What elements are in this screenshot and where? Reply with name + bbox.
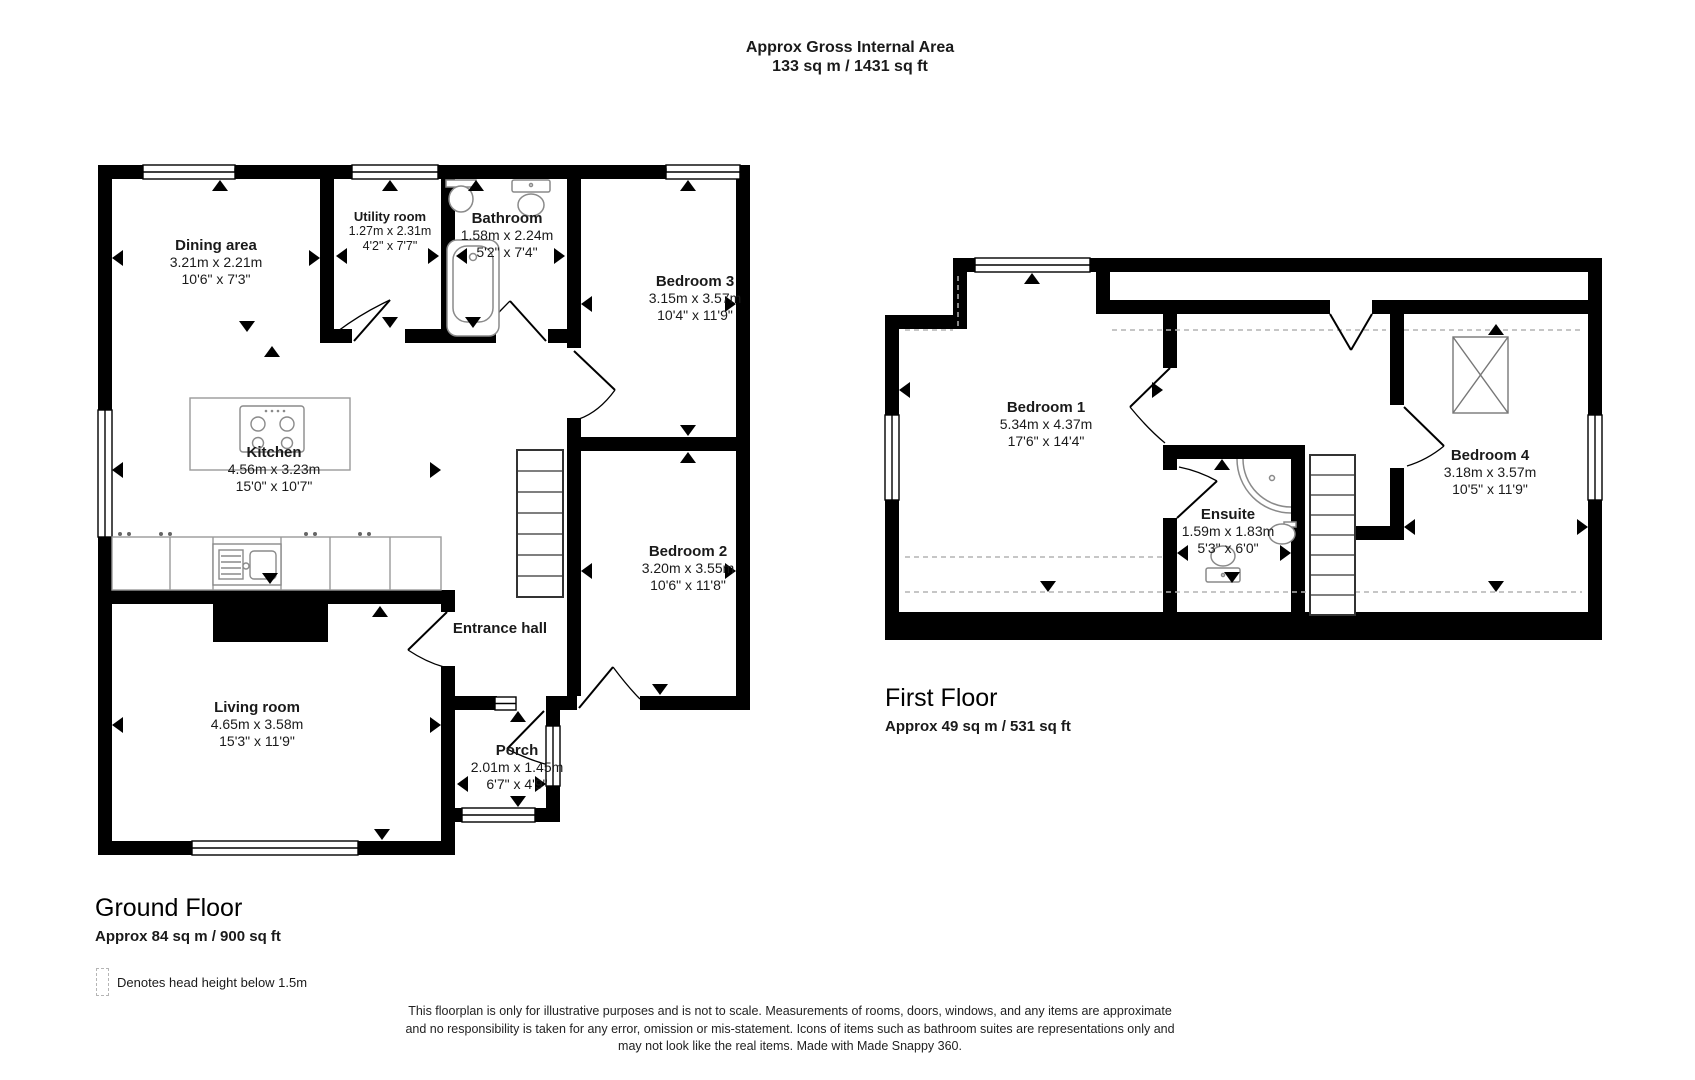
room-label-kitchen: Kitchen 4.56m x 3.23m 15'0" x 10'7" bbox=[228, 444, 321, 495]
door-swing bbox=[1130, 368, 1170, 443]
window-sill bbox=[235, 169, 312, 172]
room-label-porch: Porch 2.01m x 1.45m 6'7" x 4'9" bbox=[471, 742, 564, 793]
room-label-living-room: Living room 4.65m x 3.58m 15'3" x 11'9" bbox=[211, 699, 304, 750]
disclaimer-line-3: may not look like the real items. Made w… bbox=[370, 1038, 1210, 1056]
room-label-utility-room: Utility room 1.27m x 2.31m 4'2" x 7'7" bbox=[349, 209, 432, 254]
head-height-legend-icon bbox=[96, 968, 109, 996]
ground-floor-doors bbox=[338, 300, 640, 764]
room-label-bedroom-2: Bedroom 2 3.20m x 3.55m 10'6" x 11'8" bbox=[642, 543, 735, 594]
disclaimer-line-2: and no responsibility is taken for any e… bbox=[370, 1021, 1210, 1039]
title-line-1: Approx Gross Internal Area bbox=[746, 38, 954, 57]
skylight-icon bbox=[1453, 337, 1508, 413]
head-height-legend: Denotes head height below 1.5m bbox=[96, 968, 307, 996]
window-sill bbox=[598, 169, 666, 172]
title-line-2: 133 sq m / 1431 sq ft bbox=[746, 57, 954, 76]
door-swing bbox=[574, 351, 615, 419]
ground-floor-title: Ground Floor Approx 84 sq m / 900 sq ft bbox=[95, 894, 281, 945]
room-label-ensuite: Ensuite 1.59m x 1.83m 5'3" x 6'0" bbox=[1182, 506, 1275, 557]
door-swing bbox=[579, 667, 640, 708]
disclaimer-line-1: This floorplan is only for illustrative … bbox=[370, 1003, 1210, 1021]
room-label-bedroom-1: Bedroom 1 5.34m x 4.37m 17'6" x 14'4" bbox=[1000, 399, 1093, 450]
door-swing bbox=[1330, 314, 1372, 350]
room-label-bedroom-3: Bedroom 3 3.15m x 3.57m 10'4" x 11'9" bbox=[649, 273, 742, 324]
room-label-entrance-hall: Entrance hall bbox=[450, 620, 550, 637]
floorplan-page: Approx Gross Internal Area 133 sq m / 14… bbox=[0, 0, 1695, 1080]
room-label-bathroom: Bathroom 1.58m x 2.24m 5'2" x 7'4" bbox=[461, 210, 554, 261]
door-swing bbox=[408, 612, 447, 667]
shower-icon bbox=[1237, 459, 1291, 513]
room-label-bedroom-4: Bedroom 4 3.18m x 3.57m 10'5" x 11'9" bbox=[1444, 447, 1537, 498]
door-swing bbox=[1404, 407, 1444, 466]
page-title: Approx Gross Internal Area 133 sq m / 14… bbox=[746, 38, 954, 76]
room-label-dining-area: Dining area 3.21m x 2.21m 10'6" x 7'3" bbox=[170, 237, 263, 288]
staircase-first bbox=[1310, 455, 1355, 615]
first-floor-title: First Floor Approx 49 sq m / 531 sq ft bbox=[885, 684, 1071, 735]
staircase-ground bbox=[517, 450, 563, 597]
head-height-legend-text: Denotes head height below 1.5m bbox=[117, 975, 307, 990]
cabinet-knobs bbox=[118, 532, 371, 536]
disclaimer: This floorplan is only for illustrative … bbox=[370, 1003, 1210, 1056]
chimney-breast bbox=[213, 590, 328, 642]
